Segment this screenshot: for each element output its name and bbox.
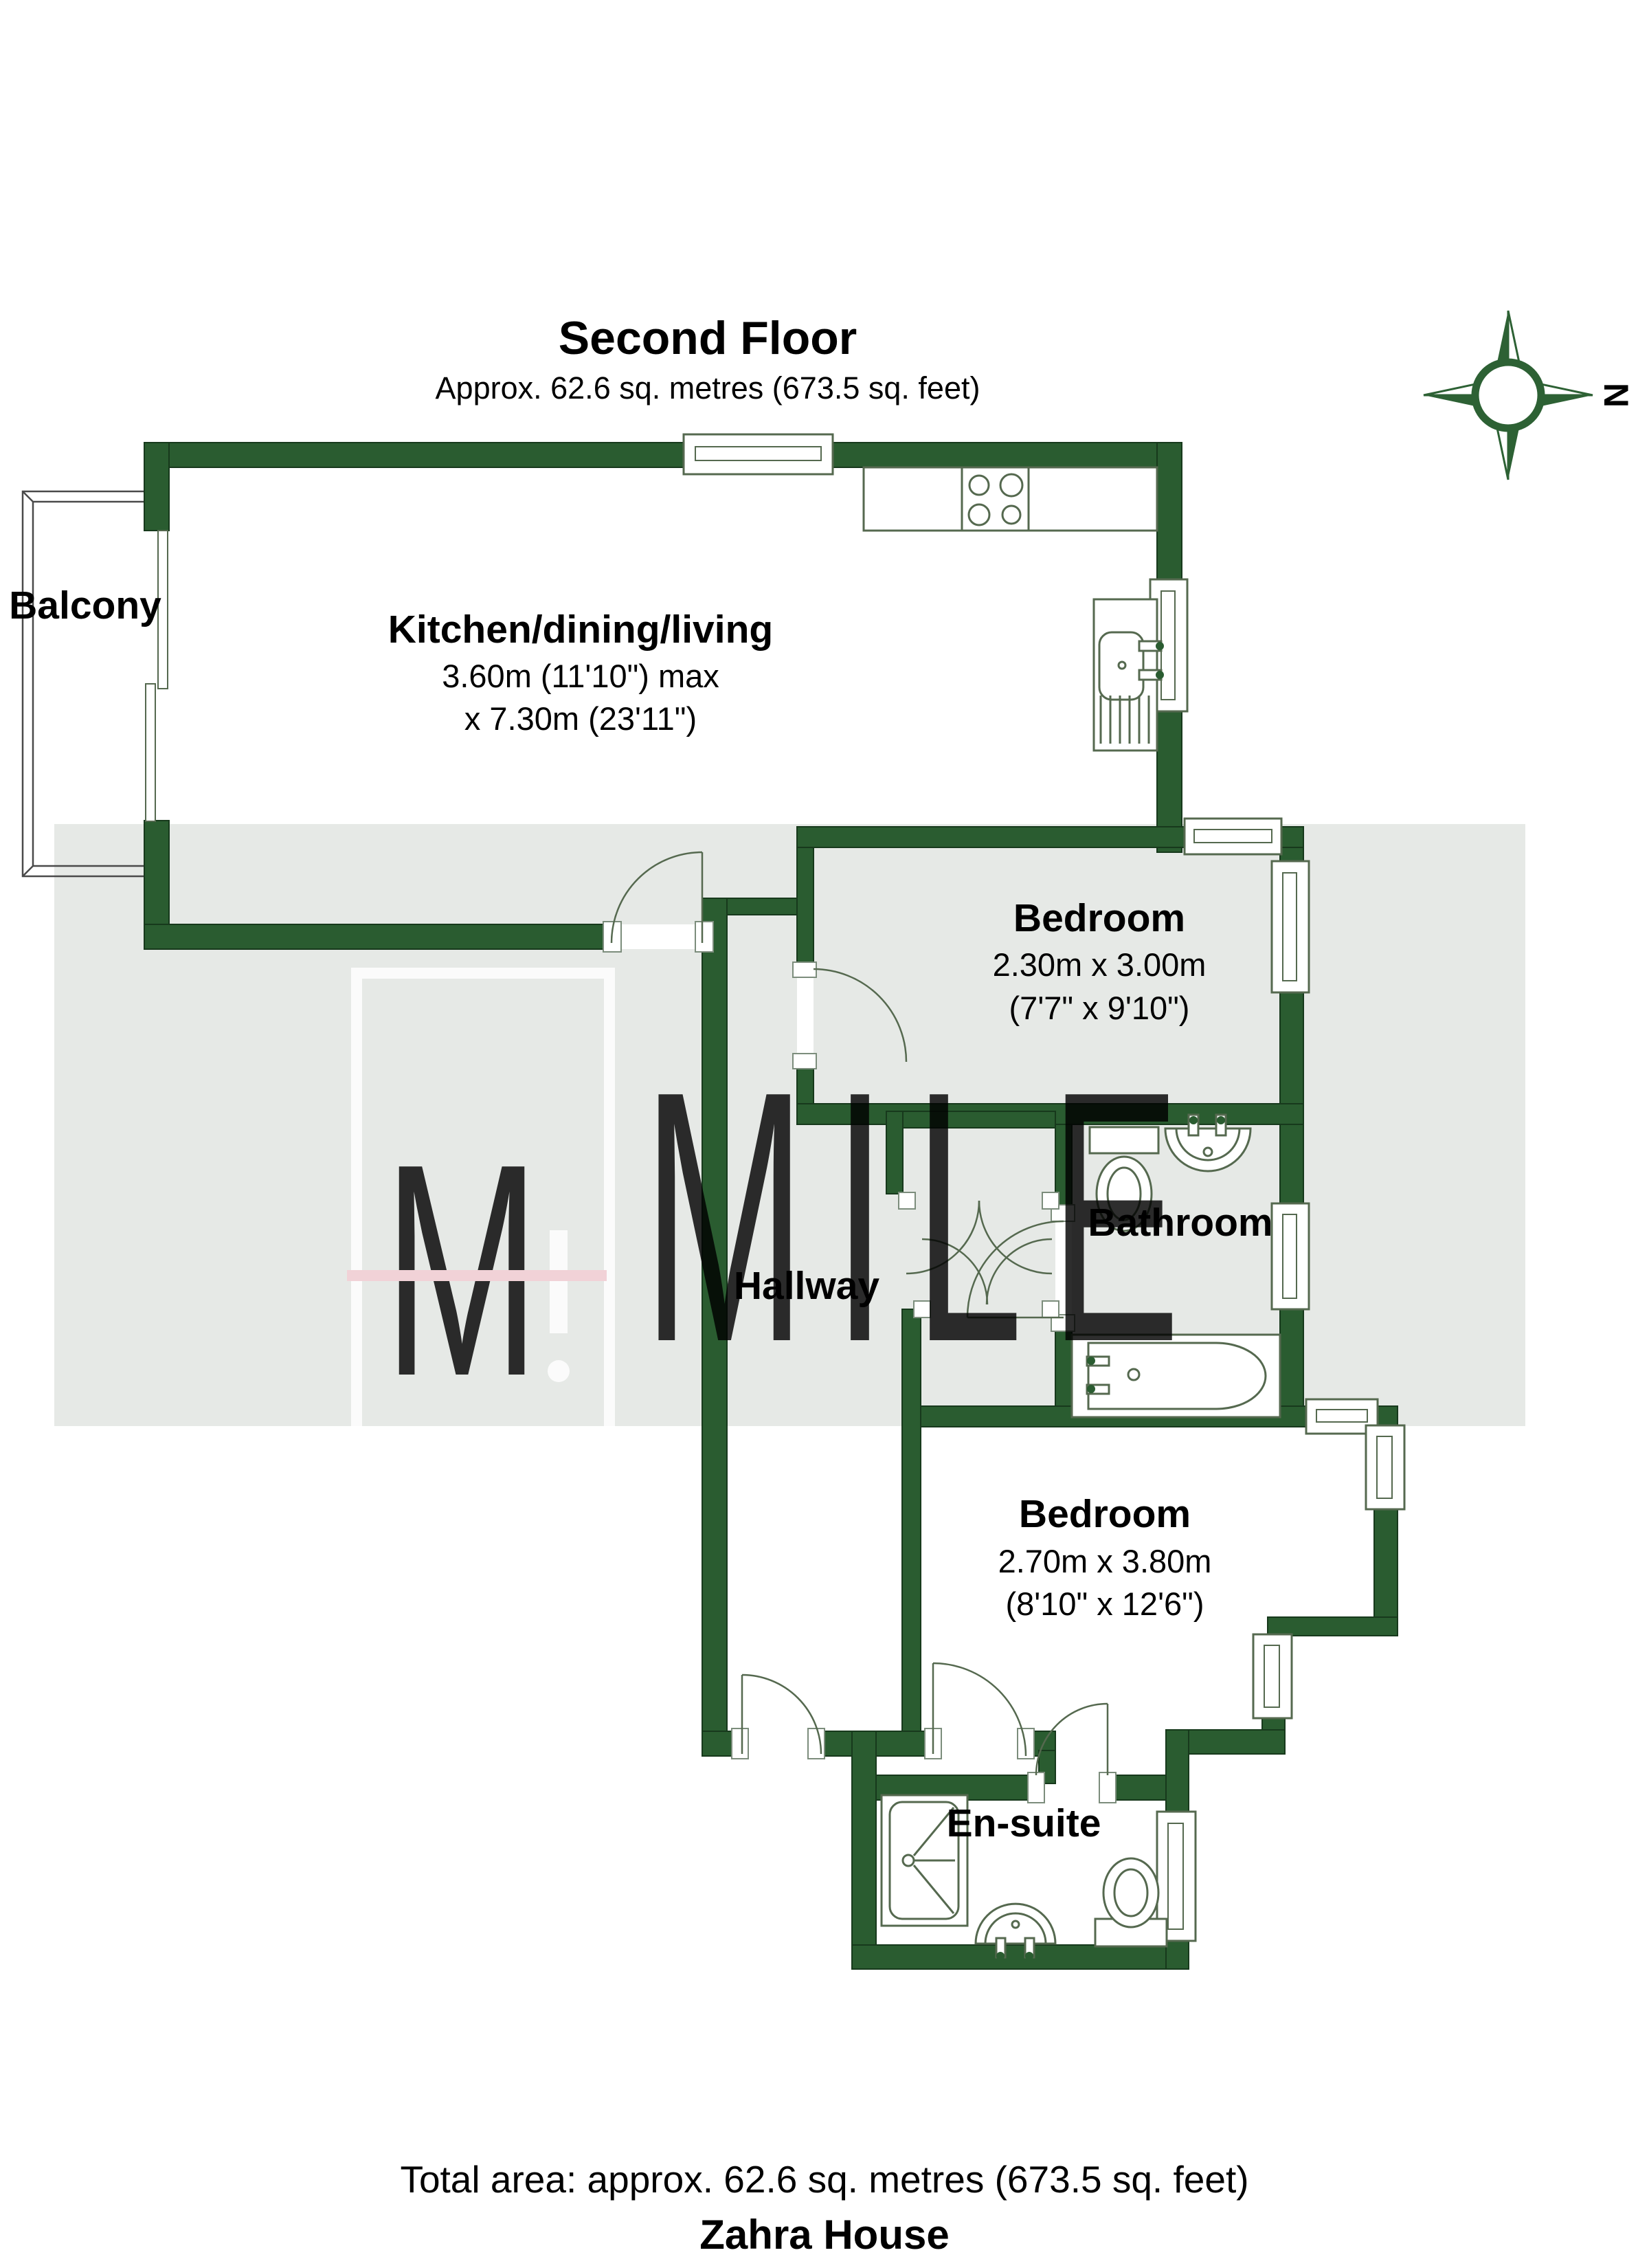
- watermark-word: MILE: [642, 1016, 1207, 1416]
- kitchen-sink-icon: [1094, 599, 1164, 751]
- watermark-pink-line: [347, 1270, 607, 1281]
- ensuite-label: En-suite: [947, 1801, 1101, 1845]
- property-name: Zahra House: [699, 2212, 949, 2258]
- kitchen-fixtures: [864, 467, 1164, 751]
- floorplan-drawing: Second Floor Approx. 62.6 sq. metres (67…: [0, 0, 1649, 2268]
- page-title: Second Floor: [559, 312, 857, 364]
- ensuite-toilet-icon: [1095, 1858, 1167, 1946]
- door-bedroom2: [933, 1663, 1026, 1756]
- kitchen-dim1: 3.60m (11'10") max: [442, 658, 719, 694]
- page-subtitle: Approx. 62.6 sq. metres (673.5 sq. feet): [436, 370, 980, 405]
- bedroom2-dim2: (8'10" x 12'6"): [1005, 1586, 1204, 1622]
- window-bedroom1-top: [1185, 819, 1281, 854]
- window-bedroom2-right-lower: [1253, 1634, 1292, 1718]
- balcony-label: Balcony: [9, 583, 161, 627]
- compass-icon: N: [1424, 311, 1635, 480]
- kitchen-dim2: x 7.30m (23'11"): [464, 700, 697, 737]
- bedroom2-dim1: 2.70m x 3.80m: [998, 1543, 1212, 1579]
- window-bedroom1-right: [1272, 861, 1309, 992]
- footer-block: Total area: approx. 62.6 sq. metres (673…: [400, 2158, 1248, 2258]
- title-block: Second Floor Approx. 62.6 sq. metres (67…: [436, 312, 980, 405]
- bedroom2-label: Bedroom: [1019, 1492, 1191, 1536]
- bedroom1-label: Bedroom: [1013, 896, 1185, 940]
- floorplan-page: Second Floor Approx. 62.6 sq. metres (67…: [0, 0, 1649, 2268]
- window-bedroom2-right: [1366, 1425, 1404, 1509]
- watermark-monogram: M: [383, 1101, 539, 1439]
- total-area-text: Total area: approx. 62.6 sq. metres (673…: [400, 2158, 1248, 2201]
- window-bathroom-right: [1272, 1203, 1309, 1309]
- window-kitchen-top: [684, 434, 833, 474]
- compass-north-label: N: [1597, 383, 1635, 408]
- bedroom1-dim1: 2.30m x 3.00m: [993, 946, 1207, 983]
- kitchen-label: Kitchen/dining/living: [388, 608, 773, 652]
- kitchen-counter: [864, 467, 1157, 531]
- balcony-railing: [23, 491, 146, 876]
